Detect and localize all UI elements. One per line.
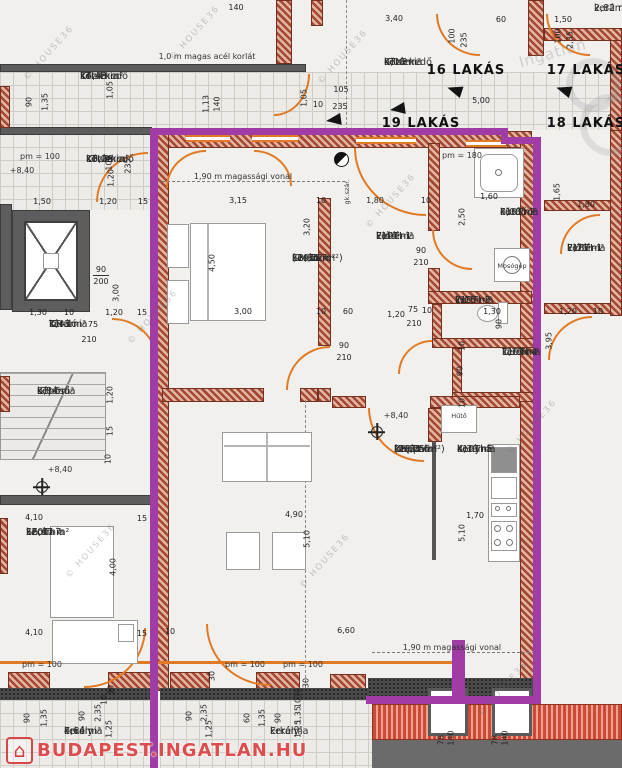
dimension: 1,50 [33, 197, 51, 206]
dimension: 1,20 [387, 310, 405, 319]
dimension: 10 [100, 695, 109, 705]
dimension: 1,20 [99, 197, 117, 206]
section-marker-icon [325, 113, 342, 127]
dimension: 10 [422, 306, 432, 315]
dimension: 1,13 [202, 95, 211, 113]
wall [276, 0, 292, 64]
dimension: 4,10 [25, 628, 43, 637]
survey-cross-icon [371, 426, 383, 438]
dimension: 210 [81, 335, 96, 344]
partition-wall [300, 388, 318, 402]
nightstand [167, 224, 189, 268]
wall [0, 204, 12, 310]
burner-icon [506, 539, 513, 546]
door-arc [166, 150, 206, 188]
annotation: 1,90 m magassági vonal [403, 643, 501, 652]
dimension: 90 [78, 711, 87, 721]
dimension: 1,20 [106, 386, 115, 404]
dimension: 5,10 [303, 530, 312, 548]
armchair [272, 532, 306, 570]
partition-wall [428, 143, 440, 231]
dimension: 90 [23, 713, 32, 723]
annotation: gk.szár. [343, 180, 351, 205]
burner-icon [495, 506, 500, 511]
pier [8, 672, 50, 689]
dimension: 1,35 [40, 709, 49, 727]
dimension: 90 [339, 341, 349, 350]
dimension: 210 [413, 258, 428, 267]
burner-icon [506, 525, 513, 532]
dimension: 30 [208, 671, 217, 681]
wall [311, 0, 323, 26]
section-marker-icon [389, 102, 406, 116]
dimension: 2,35 [566, 31, 575, 49]
wall [0, 495, 152, 505]
dimension: 1,20 [105, 308, 123, 317]
dimension: 1,20 [107, 169, 116, 187]
burner-icon [494, 539, 501, 546]
dimension: 4,10 [25, 513, 43, 522]
wall [0, 518, 8, 574]
annotation: pm = 100 [20, 152, 60, 161]
dimension: 90 [185, 711, 194, 721]
dimension: 10 [104, 454, 113, 464]
apartment-left-wall [157, 131, 169, 691]
pier [330, 674, 366, 689]
dimension: 3,20 [303, 218, 312, 236]
dimension: 90 [274, 713, 283, 723]
apartment-right-wall [520, 138, 534, 690]
wall [610, 130, 622, 316]
annotation: pm = 100 [225, 660, 265, 669]
sofa-line [266, 433, 268, 481]
dimension: 10 [593, 307, 603, 316]
dimension: 1,65 [553, 183, 562, 201]
dimension: 100 [448, 28, 457, 43]
dimension: 1,70 [466, 511, 484, 520]
sill-wall [0, 688, 152, 700]
dimension: 15 [137, 629, 147, 638]
dimension: 1,25 [105, 720, 114, 738]
dimension: 10 [458, 398, 467, 408]
dimension: 10 [316, 196, 326, 205]
partition-wall [318, 388, 331, 402]
door-arc [398, 340, 432, 374]
annotation: pm = 100 [283, 660, 323, 669]
dimension: 2,50 [458, 208, 467, 226]
shower-drain [495, 169, 502, 176]
dimension: 235 [124, 158, 133, 173]
dimension: 75 [88, 320, 98, 329]
dimension: 4,90 [285, 510, 303, 519]
dimension: 2,35 [94, 704, 103, 722]
wall [0, 127, 152, 135]
dimension: 235 [460, 32, 469, 47]
window [186, 135, 230, 142]
burner-icon [494, 525, 501, 532]
section-circle-icon [334, 152, 349, 167]
dimension: 5,00 [472, 96, 490, 105]
dimension: 10 [421, 196, 431, 205]
apt19-boundary-left [150, 128, 158, 768]
dimension: 10 [165, 627, 175, 636]
dimension: 15 [138, 197, 148, 206]
dimension: 10 [316, 307, 326, 316]
dimension: 60 [496, 15, 506, 24]
door-arc [432, 230, 472, 270]
house-icon: ⌂ [6, 737, 33, 764]
dimension: 10 [313, 100, 323, 109]
dimension: 1,35 [41, 93, 50, 111]
bed-line [207, 224, 209, 320]
dimension: 10 [458, 341, 467, 351]
dimension: 200 [93, 277, 108, 286]
dimension: 75 [408, 305, 418, 314]
floor-plan: Ingatlan KTI-4Közlekedőkerámia14,43 m²KT… [0, 0, 622, 768]
dimension: 90 [25, 97, 34, 107]
unit-label: 17 LAKÁS [547, 63, 622, 78]
dimension: 60 [343, 307, 353, 316]
dimension: 15 [137, 514, 147, 523]
annotation: 1,90 m magassági vonal [194, 172, 292, 181]
dimension: 1,30 [29, 308, 47, 317]
dimension: 1,25 [205, 720, 214, 738]
kitchen-partition [432, 442, 436, 560]
dimension: 140 [501, 730, 510, 745]
dimension: 90 [456, 366, 465, 376]
survey-cross-icon [36, 481, 48, 493]
partition-wall [332, 396, 366, 408]
railing-wall [0, 64, 306, 72]
pillow [118, 624, 134, 642]
annotation: +8,40 [10, 166, 35, 175]
site-watermark-text: BUDAPEST.INGATLAN.HU [37, 740, 307, 761]
dimension: 90 [495, 319, 504, 329]
dimension: 30 [302, 678, 311, 688]
annotation: pm = 100 [22, 660, 62, 669]
dimension: 60 [243, 713, 252, 723]
dimension: 1,25 [294, 720, 303, 738]
annotation: +8,40 [384, 411, 409, 420]
fraction-line [93, 275, 109, 276]
dimension: 3,15 [229, 196, 247, 205]
bed [190, 223, 266, 321]
dimension: 3,00 [234, 307, 252, 316]
dimension: 15 [106, 426, 115, 436]
unit-label: 18 LAKÁS [547, 116, 622, 131]
sill-wall [160, 688, 368, 700]
burner-icon [506, 506, 511, 511]
pier [170, 672, 210, 689]
unit-label: 19 LAKÁS [382, 116, 460, 131]
dimension: 210 [406, 319, 421, 328]
dimension: 4,00 [109, 558, 118, 576]
dimension: 105 [333, 85, 348, 94]
window [252, 135, 298, 142]
dimension: 140 [447, 730, 456, 745]
door-arc [548, 316, 592, 360]
dimension: 90 [416, 246, 426, 255]
window [466, 140, 506, 147]
dimension: 3,40 [385, 14, 403, 23]
dimension: 15 [137, 308, 147, 317]
dimension: 100 [554, 28, 563, 43]
dimension: 1,05 [106, 81, 115, 99]
dimension: 30 [294, 688, 303, 698]
partition-wall [428, 408, 442, 442]
annotation: pm = 180 [442, 151, 482, 160]
elevator-car-icon [43, 253, 59, 269]
door-arc [436, 14, 480, 56]
annotation: +8,40 [48, 465, 73, 474]
annotation: Mosógép [497, 262, 526, 270]
dimension: 140 [213, 96, 222, 111]
dimension: 6,60 [337, 626, 355, 635]
dimension: 90 [96, 265, 106, 274]
dimension: 1,80 [577, 200, 595, 209]
partition-wall [162, 388, 264, 402]
wall [0, 86, 10, 128]
dimension: 78 [437, 735, 446, 745]
dimension: 30 [107, 685, 116, 695]
dimension: 235 [332, 102, 347, 111]
dimension: 1,60 [480, 192, 498, 201]
dimension: 140 [228, 3, 243, 12]
site-watermark: ⌂ BUDAPEST.INGATLAN.HU [6, 737, 307, 764]
kitchen-cabinet [491, 477, 517, 499]
dimension: 1,35 [258, 709, 267, 727]
partition-wall [318, 198, 331, 346]
dimension: 4,50 [208, 254, 217, 272]
door-arc [286, 346, 330, 390]
dimension: 1,30 [483, 307, 501, 316]
dimension: 3,95 [545, 332, 554, 350]
dimension: 210 [336, 353, 351, 362]
dimension: 78 [491, 735, 500, 745]
annotation: Hűtő [451, 412, 467, 420]
wall [0, 376, 10, 412]
armchair [226, 532, 260, 570]
dimension: 3,00 [112, 284, 121, 302]
window [356, 137, 416, 144]
dimension: 1,50 [554, 15, 572, 24]
dimension: 1,05 [300, 89, 309, 107]
unit-label: 16 LAKÁS [427, 63, 505, 78]
dimension: 5,10 [458, 524, 467, 542]
dimension: 10 [64, 308, 74, 317]
dimension: 1,20 [559, 307, 577, 316]
